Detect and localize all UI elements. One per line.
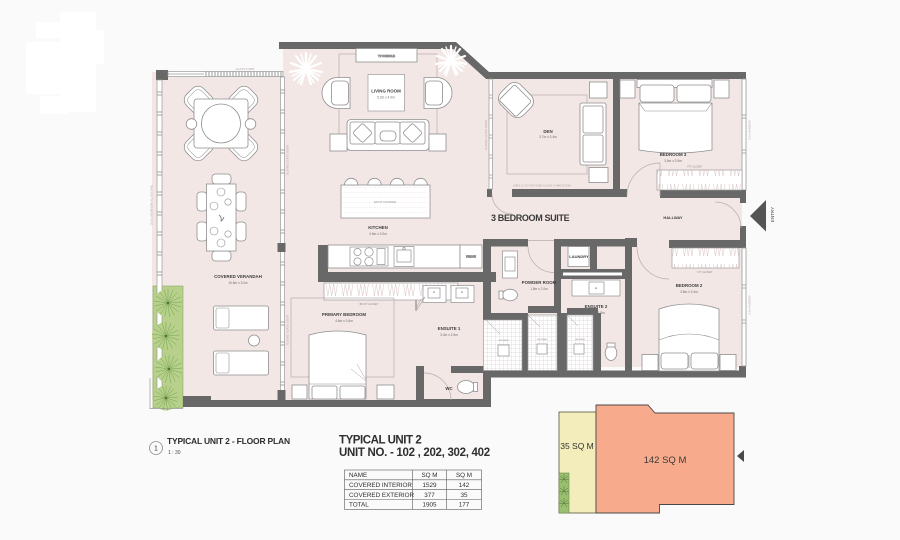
svg-text:2.0m x 1.8m: 2.0m x 1.8m bbox=[587, 311, 605, 315]
svg-text:3.7m x 3.4m: 3.7m x 3.4m bbox=[539, 135, 557, 139]
svg-text:WC: WC bbox=[445, 386, 453, 391]
svg-text:HALLWAY: HALLWAY bbox=[663, 215, 683, 220]
svg-text:1905: 1905 bbox=[422, 502, 437, 509]
svg-text:SLIDING GLASS DOOR: SLIDING GLASS DOOR bbox=[484, 120, 488, 150]
svg-text:FIT CLOSET: FIT CLOSET bbox=[688, 165, 703, 169]
svg-text:UNIT NO. - 102 , 202, 302, 402: UNIT NO. - 102 , 202, 302, 402 bbox=[339, 447, 490, 459]
svg-text:35 SQ M: 35 SQ M bbox=[560, 441, 594, 451]
svg-text:10.5m x 3.0m: 10.5m x 3.0m bbox=[228, 281, 248, 285]
svg-text:TYPICAL UNIT 2: TYPICAL UNIT 2 bbox=[339, 435, 421, 447]
svg-text:FRIDGE: FRIDGE bbox=[466, 255, 476, 259]
svg-text:EAT AT COUNTER: EAT AT COUNTER bbox=[374, 200, 396, 204]
svg-text:B/I FIT CLOSET: B/I FIT CLOSET bbox=[360, 302, 379, 306]
svg-text:NAME: NAME bbox=[349, 472, 367, 479]
svg-text:BEDROOM 2: BEDROOM 2 bbox=[676, 283, 703, 288]
svg-text:SQ M: SQ M bbox=[456, 472, 472, 479]
svg-text:LAUNDRY: LAUNDRY bbox=[569, 254, 589, 259]
svg-text:FIT CLOSET: FIT CLOSET bbox=[698, 270, 713, 274]
svg-text:SHOWER: SHOWER bbox=[575, 339, 585, 341]
svg-text:1529: 1529 bbox=[422, 482, 437, 489]
svg-text:TV CONSOLE: TV CONSOLE bbox=[378, 54, 395, 58]
svg-text:PRIMARY BEDROOM: PRIMARY BEDROOM bbox=[322, 312, 366, 317]
svg-text:SLIDING GLASS DOOR: SLIDING GLASS DOOR bbox=[286, 315, 290, 345]
svg-text:GLASS 9.4MM: GLASS 9.4MM bbox=[236, 67, 255, 71]
svg-text:4.6m x 3.6m: 4.6m x 3.6m bbox=[335, 319, 353, 323]
svg-text:3.5m x 3.5m: 3.5m x 3.5m bbox=[664, 159, 682, 163]
svg-text:3.4m x 2.5m: 3.4m x 2.5m bbox=[440, 333, 458, 337]
svg-text:377: 377 bbox=[424, 492, 435, 499]
svg-text:1 : 30: 1 : 30 bbox=[168, 450, 181, 456]
svg-text:177: 177 bbox=[459, 502, 470, 509]
svg-text:DEN: DEN bbox=[543, 129, 552, 134]
svg-text:TOTAL: TOTAL bbox=[349, 502, 369, 509]
svg-text:ENSUITE 1: ENSUITE 1 bbox=[438, 326, 461, 331]
svg-text:142 SQ M: 142 SQ M bbox=[644, 455, 687, 466]
svg-text:10.5m VERANDAH GLASS RAIL: 10.5m VERANDAH GLASS RAIL bbox=[150, 184, 154, 226]
svg-text:5.2m x 4.0m: 5.2m x 4.0m bbox=[377, 96, 395, 100]
svg-text:TYPICAL UNIT 2 - FLOOR PLAN: TYPICAL UNIT 2 - FLOOR PLAN bbox=[167, 436, 290, 446]
svg-text:SHOWER: SHOWER bbox=[499, 340, 509, 342]
svg-text:3 BEDROOM SUITE: 3 BEDROOM SUITE bbox=[491, 213, 570, 223]
svg-text:4.6m x 3.0m: 4.6m x 3.0m bbox=[369, 232, 387, 236]
svg-text:1: 1 bbox=[154, 446, 158, 453]
svg-text:SQ M: SQ M bbox=[421, 472, 437, 479]
svg-text:ENSUITE 2: ENSUITE 2 bbox=[585, 304, 608, 309]
svg-text:BEDROOM 3: BEDROOM 3 bbox=[660, 152, 687, 157]
svg-text:3.0m WINDOW: 3.0m WINDOW bbox=[748, 120, 752, 140]
svg-text:POWDER ROOM: POWDER ROOM bbox=[522, 280, 557, 285]
svg-text:3.0m WINDOW: 3.0m WINDOW bbox=[748, 295, 752, 315]
svg-text:DIMS 11-10 FOR GWB GLASS 9.4MM: DIMS 11-10 FOR GWB GLASS 9.4MM ROOM bbox=[513, 184, 571, 188]
svg-text:142: 142 bbox=[459, 482, 470, 489]
svg-text:COVERED INTERIOR: COVERED INTERIOR bbox=[349, 482, 412, 489]
svg-text:LIVING ROOM: LIVING ROOM bbox=[371, 89, 401, 94]
svg-text:KITCHEN: KITCHEN bbox=[368, 225, 388, 230]
svg-text:35: 35 bbox=[460, 492, 468, 499]
svg-text:COVERED EXTERIOR: COVERED EXTERIOR bbox=[349, 492, 415, 499]
svg-text:SLIDING GLASS DOOR: SLIDING GLASS DOOR bbox=[286, 145, 290, 175]
svg-text:ENTRY: ENTRY bbox=[770, 207, 775, 223]
svg-text:1.8m x 2.0m: 1.8m x 2.0m bbox=[530, 287, 548, 291]
svg-text:COVERED VERANDAH: COVERED VERANDAH bbox=[214, 274, 262, 279]
svg-text:SHOWER: SHOWER bbox=[537, 339, 547, 341]
svg-text:3.8m x 3.4m: 3.8m x 3.4m bbox=[680, 290, 698, 294]
